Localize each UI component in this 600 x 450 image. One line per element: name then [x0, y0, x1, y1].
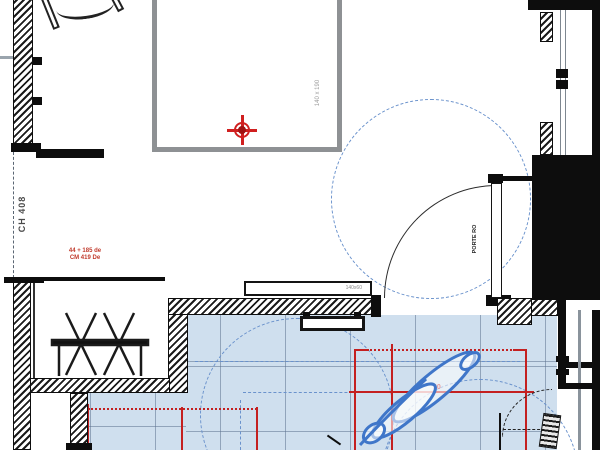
- floor-plan: 90 44 + 185 de CM 419 De 140 x 190 140x6…: [0, 0, 600, 450]
- sill-tab-2: [556, 369, 569, 375]
- armchair-seat-edge: [55, 0, 116, 23]
- red-rect-a-right: [256, 407, 258, 450]
- wall-left-lower: [13, 282, 31, 450]
- wall-left-upper: [13, 0, 33, 152]
- shower-tile-floor: [88, 392, 186, 450]
- wall-shower-partition-cap: [66, 443, 92, 450]
- armchair: [38, 0, 128, 40]
- wall-bottom-right-bar: [558, 383, 600, 389]
- wall-mass-right: [532, 155, 600, 300]
- red-note-line2: CM 419 De: [70, 255, 100, 261]
- closet-inner-face: [33, 283, 35, 379]
- wheelchair-sketch: [348, 345, 498, 450]
- wall-band-right: [531, 298, 558, 316]
- window-mullion-2: [556, 80, 568, 89]
- level-marker-icon: [227, 115, 257, 145]
- red-rect-a-left: [181, 407, 183, 450]
- crosshair-center: [238, 126, 246, 134]
- red-note-line1: 44 + 185 de: [69, 248, 101, 254]
- window-opening-axis: [13, 152, 14, 278]
- wall-right-column-bottom: [592, 310, 600, 450]
- exterior-tick: [0, 56, 13, 59]
- door2-jamb-line: [499, 413, 501, 450]
- red-dotted-line-shower: [88, 408, 257, 410]
- window-mullion-1: [556, 69, 568, 78]
- wall-top-band: [528, 0, 600, 10]
- wall-closet-bottom: [30, 378, 170, 393]
- rack-bar: [52, 340, 148, 345]
- window-glazing-lower: [578, 310, 581, 450]
- bed-size-label: 140 x 190: [315, 63, 321, 123]
- wall-shower-partition: [70, 393, 88, 444]
- wall-switch-tab-2: [33, 97, 42, 105]
- window-right-jamb-top: [540, 12, 553, 42]
- window-right-jamb-bottom: [540, 122, 553, 155]
- luggage-rack: [44, 303, 156, 381]
- door2-dashed-line: [503, 429, 545, 430]
- wall-bathroom-north-cap: [371, 295, 381, 317]
- wall-switch-tab-1: [33, 57, 42, 65]
- door-leaf: [491, 183, 502, 298]
- room-label: CH 408: [17, 184, 27, 244]
- wall-right-column-top: [592, 10, 600, 155]
- closet-top-partition: [33, 277, 165, 281]
- wall-bathroom-north: [168, 298, 379, 315]
- window-header-bar: [36, 149, 104, 158]
- door-stop-top: [488, 174, 503, 183]
- red-note: 44 + 185 de CM 419 De: [55, 248, 115, 262]
- wall-pier-right-of-door: [497, 298, 532, 325]
- door-label: PORTE RO: [472, 213, 478, 265]
- wall-shelf: [300, 316, 365, 331]
